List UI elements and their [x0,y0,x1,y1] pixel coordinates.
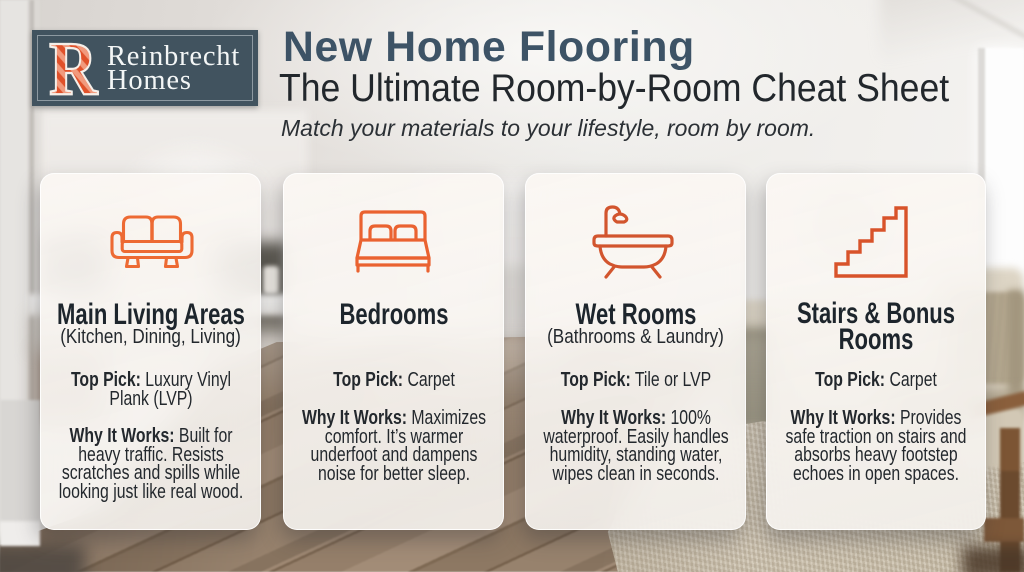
svg-text:R: R [49,38,99,98]
